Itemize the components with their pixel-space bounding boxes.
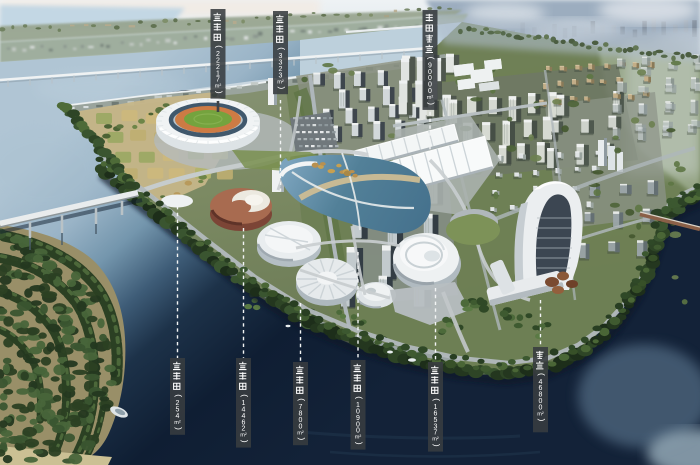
svg-text:m²: m² bbox=[432, 437, 439, 443]
svg-text:(: ( bbox=[174, 394, 184, 397]
svg-text:3: 3 bbox=[279, 72, 283, 79]
svg-text:m²: m² bbox=[277, 79, 284, 85]
svg-text:0: 0 bbox=[428, 88, 432, 95]
svg-text:m²: m² bbox=[174, 420, 181, 426]
svg-text:): ) bbox=[432, 444, 442, 447]
svg-text:(: ( bbox=[214, 45, 224, 48]
svg-text:): ) bbox=[297, 438, 307, 441]
svg-text:m²: m² bbox=[537, 411, 544, 417]
svg-text:7: 7 bbox=[216, 77, 220, 84]
svg-text:m²: m² bbox=[427, 95, 434, 101]
svg-text:0: 0 bbox=[539, 404, 543, 411]
svg-text:(: ( bbox=[240, 394, 250, 397]
svg-text:): ) bbox=[277, 87, 287, 90]
svg-text:): ) bbox=[214, 91, 224, 94]
svg-text:(: ( bbox=[354, 396, 364, 399]
svg-text:): ) bbox=[174, 427, 184, 430]
svg-text:): ) bbox=[537, 419, 547, 422]
svg-text:0: 0 bbox=[356, 428, 360, 435]
svg-text:(: ( bbox=[277, 47, 287, 50]
svg-text:): ) bbox=[240, 440, 250, 443]
svg-text:m²: m² bbox=[215, 84, 222, 90]
svg-text:(: ( bbox=[426, 57, 436, 60]
svg-text:): ) bbox=[354, 442, 364, 445]
svg-text:4: 4 bbox=[176, 413, 180, 420]
svg-text:7: 7 bbox=[434, 430, 438, 437]
svg-text:m²: m² bbox=[297, 430, 304, 436]
svg-text:(: ( bbox=[432, 398, 442, 401]
svg-text:0: 0 bbox=[299, 423, 303, 430]
svg-text:m²: m² bbox=[240, 433, 247, 439]
svg-text:): ) bbox=[426, 102, 436, 105]
svg-text:(: ( bbox=[537, 373, 547, 376]
svg-text:(: ( bbox=[297, 398, 307, 401]
svg-text:m²: m² bbox=[355, 435, 362, 441]
svg-text:2: 2 bbox=[242, 426, 246, 433]
